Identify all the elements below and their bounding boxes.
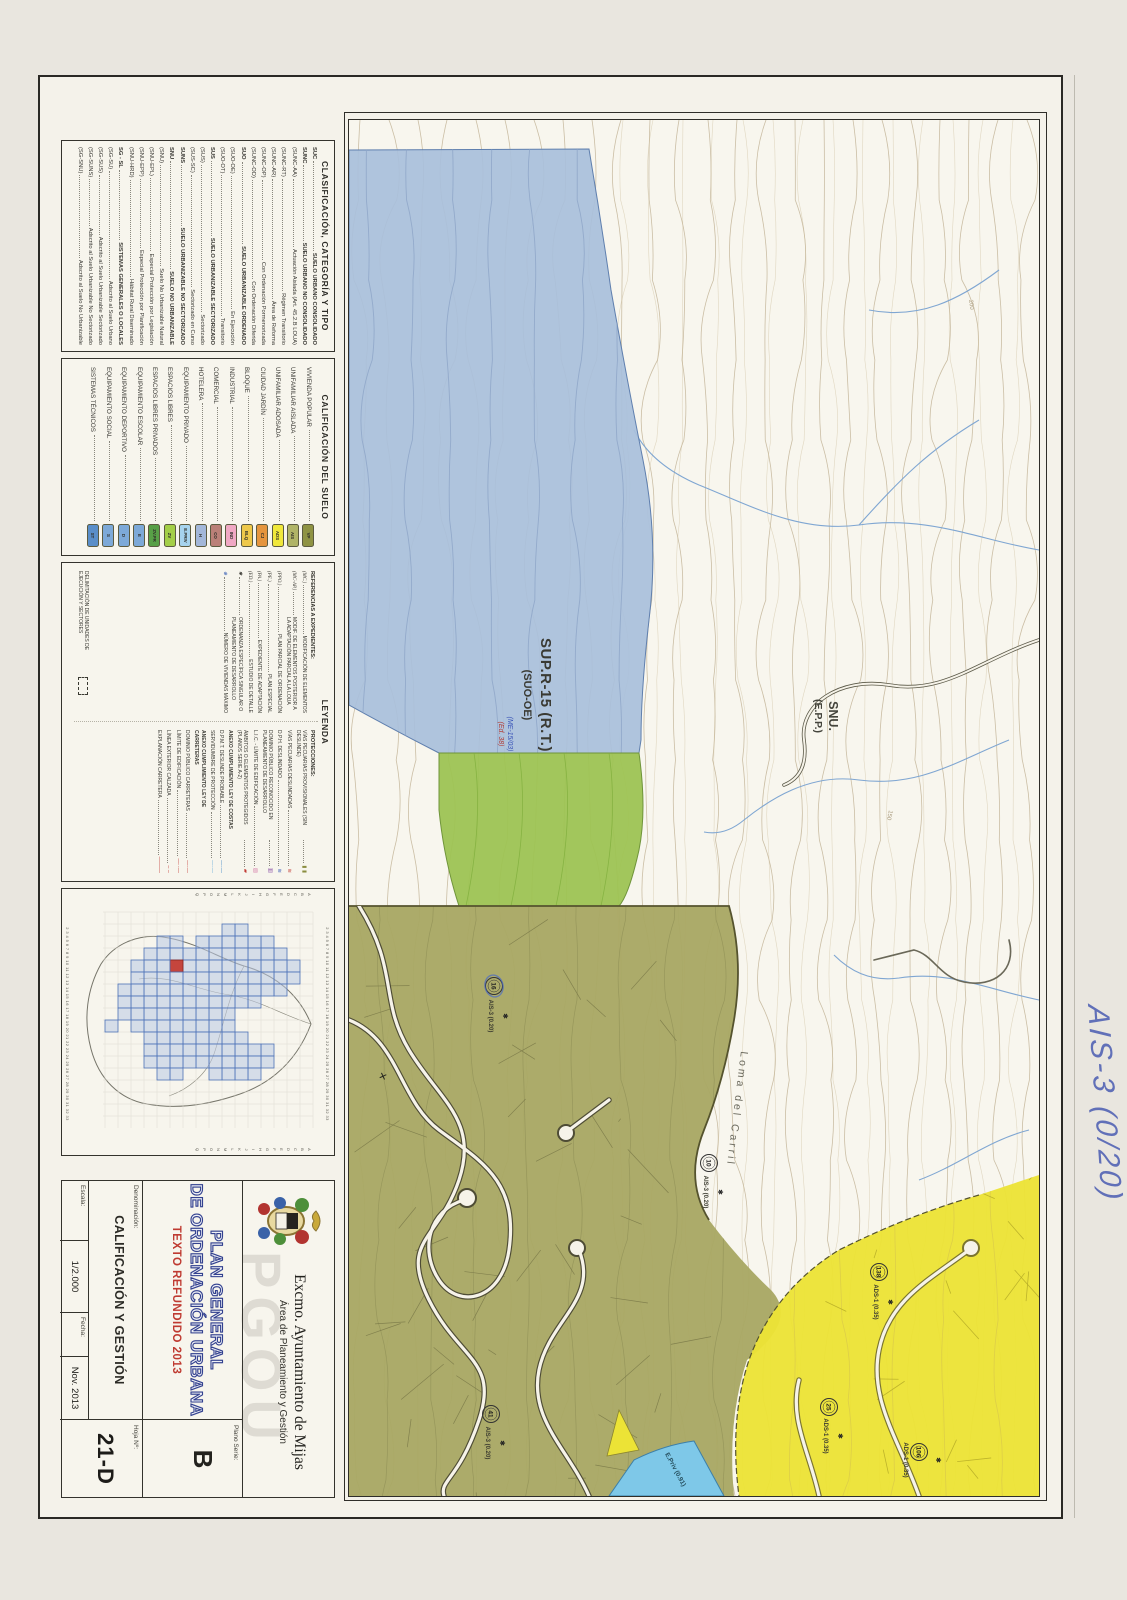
epp-zone-label: (E.P.P.) — [812, 699, 824, 733]
color-chip: VP — [302, 524, 314, 547]
calificacion-row: BLOQUE BLQ — [239, 367, 254, 547]
clasificacion-row: SUNC SUELO URBANO NO CONSOLIDADO — [297, 147, 307, 345]
asterisk-marker-icon: ✱ — [836, 1433, 844, 1439]
asterisk-marker-icon: ✱ — [934, 1457, 942, 1463]
titleblock-denominacion-row: Denominación: CALIFICACIÓN Y GESTIÓN Hoj… — [88, 1181, 142, 1497]
calificacion-row: ESPACIOS LIBRES ZV — [162, 367, 177, 547]
clasificacion-row: SUC SUELO URBANO CONSOLIDADO — [307, 147, 317, 345]
clasificacion-row: (SG-SUS) Adscrito al Suelo Urbanizable S… — [93, 147, 103, 345]
zone-ads1-yellow — [736, 1175, 1039, 1496]
index-numbers-bottom: 2 3 4 5 6 7 8 9 10 11 12 13 14 15 16 17 … — [65, 903, 70, 1145]
calificacion-title: CALIFICACIÓN DEL SUELO — [320, 359, 334, 555]
clasificacion-row: (SUNC-OD) Con Ordenación Diferida — [246, 147, 256, 345]
svg-text:10: 10 — [705, 1159, 712, 1167]
referencia-row: (MC.) MODIFICACIÓN DE ELEMENTOS — [300, 571, 307, 713]
protecciones-rows: VÍAS PECUARIAS PROVISIONALES (SIN DESLIN… — [153, 730, 307, 873]
proteccion-row: DOMINIO PÚBLICO CARRETERAS —·— — [184, 730, 191, 873]
legend-symbol-icon: ≋ — [285, 868, 292, 873]
current-sheet-cell — [170, 960, 183, 972]
color-chip: S — [102, 524, 114, 547]
index-numbers-top: 2 3 4 5 6 7 8 9 10 11 12 13 14 15 16 17 … — [325, 903, 330, 1145]
titleblock-header-row: Excmo. Ayuntamiento de Mijas Área de Pla… — [242, 1181, 334, 1497]
svg-text:ADS-1 (0.35): ADS-1 (0.35) — [872, 1284, 878, 1319]
clasificacion-row: SG - SL SISTEMAS GENERALES O LOCALES — [113, 147, 123, 345]
svg-text:AIS-3 (0.20): AIS-3 (0.20) — [487, 1000, 493, 1033]
proteccion-row: VÍAS PECUARIAS PROVISIONALES (SIN DESLIN… — [295, 730, 308, 873]
svg-text:106: 106 — [915, 1447, 922, 1458]
proteccion-row: SERVIDUMBRE DE PROTECCIÓN —·— — [208, 730, 215, 873]
color-chip: BLQ — [241, 524, 253, 547]
clasificacion-row: SUNS SUELO URBANIZABLE NO SECTORIZADO — [174, 147, 184, 345]
margin-line — [1074, 75, 1075, 1518]
plan-title-line1: PLAN GENERAL — [206, 1181, 226, 1419]
contour-elevation-150: 150 — [885, 810, 893, 822]
leyenda-title: LEYENDA — [320, 563, 334, 881]
clasificacion-row: SUS SUELO URBANIZABLE SECTORIZADO — [205, 147, 215, 345]
proteccion-row: LÍNEA EXTERIOR CALZADA – – — [165, 730, 172, 873]
clasificacion-row: (SNU-EPL) Especial Protección por Legisl… — [144, 147, 154, 345]
contour-elevation-200: 200 — [967, 299, 974, 310]
scanned-plan-sheet: { "clasificacion": { "title": "CLASIFICA… — [0, 0, 1127, 1600]
expediente-ref-1: (ME-15/03) — [506, 716, 513, 751]
clasificacion-row: (SNU) Suelo No Urbanizable Natural — [154, 147, 164, 345]
clasificacion-row: (SNU-HRD) Hábitat Rural Diseminado — [123, 147, 133, 345]
legend-symbol-icon: ▨ — [251, 868, 258, 873]
zone-sup-blue — [349, 149, 653, 753]
asterisk-marker-icon: ✱ — [886, 1299, 894, 1305]
color-chip: CO — [210, 524, 222, 547]
referencia-row: (PA.) EXPEDIENTE DE ADAPTACIÓN — [255, 571, 262, 713]
municipality-index-map — [77, 904, 319, 1140]
referencia-row: (ED.) ESTUDIO DE DETALLE — [245, 571, 252, 713]
dashed-boundary-icon — [78, 677, 88, 695]
proteccion-row: L.I.C. - LÍMITE DE EDIFICACIÓN ▨ — [251, 730, 258, 873]
asterisk-marker-icon: ✱ — [498, 1440, 506, 1446]
proteccion-row: D.P.M.T. DESLINDE PROBABLE —·— — [218, 730, 225, 873]
map-canvas: SUP.R-15 (R.T.) (SUO-OE) (ME-15/03) (Ed.… — [348, 119, 1040, 1497]
titleblock-escala-row: Escala: 1/2.000 Fecha: Nov. 2013 — [60, 1181, 88, 1497]
referencia-row: (PPO.) PLAN PARCIAL DE ORDENACIÓN — [275, 571, 282, 713]
color-chip: E — [133, 524, 145, 547]
suo-zone-label: (SUO-OE) — [521, 670, 533, 721]
color-chip: ST — [87, 524, 99, 547]
map-frame: SUP.R-15 (R.T.) (SUO-OE) (ME-15/03) (Ed.… — [344, 112, 1047, 1501]
clasificacion-rows: SUC SUELO URBANO CONSOLIDADO SUNC SUELO … — [71, 141, 321, 351]
title-block: PGOU Excmo. Ayuntamiento de Mijas Área d… — [61, 1180, 335, 1498]
plano-serie-label: Plano Serie: — [232, 1421, 242, 1497]
svg-text:ADS-1 (0.35): ADS-1 (0.35) — [902, 1442, 908, 1477]
calificacion-row: HOTELERA H — [193, 367, 208, 547]
color-chip: D — [118, 524, 130, 547]
svg-text:41: 41 — [487, 1410, 494, 1418]
referencia-row: (MC-AP.) MODIF. DE ELEMENTOS POSTERIOR A… — [285, 571, 298, 713]
panel-leyenda: LEYENDA REFERENCIAS A EXPEDIENTES: (MC.)… — [61, 562, 335, 882]
proteccion-row: ÁMBITOS O ELEMENTOS PROTEGIDOS (PLANOS S… — [236, 730, 249, 873]
referencia-row: ⊕ NÚMERO DE VIVIENDAS MÁXIMO — [220, 571, 227, 713]
plan-title-line2: DE ORDENACIÓN URBANA — [186, 1181, 206, 1419]
calificacion-row: EQUIPAMIENTO DEPORTIVO D — [116, 367, 131, 547]
panel-sheet-index-map: 2 3 4 5 6 7 8 9 10 11 12 13 14 15 16 17 … — [61, 888, 335, 1156]
clasificacion-row: (SG-SNU) Adscrito al Suelo No Urbanizabl… — [73, 147, 83, 345]
leyenda-protecciones-column: PROTECCIONES: VÍAS PECUARIAS PROVISIONAL… — [74, 721, 318, 873]
expediente-ref-2: (Ed. 38) — [497, 722, 504, 747]
calificacion-row: UNIFAMILIAR ADOSADA ADS — [270, 367, 285, 547]
color-chip: H — [195, 524, 207, 547]
leyenda-referencias-column: REFERENCIAS A EXPEDIENTES: (MC.) MODIFIC… — [74, 571, 318, 721]
proteccion-row: D.P.H. DESLINDADO ≋ — [276, 730, 283, 873]
proteccion-row: EXPLANACIÓN CARRETERA ——— — [155, 730, 162, 873]
titleblock-title-row: PLAN GENERAL DE ORDENACIÓN URBANA TEXTO … — [142, 1181, 242, 1497]
calificacion-row: INDUSTRIAL IND — [224, 367, 239, 547]
legend-symbol-icon: —·— — [208, 860, 215, 873]
marker-ais3: 10 ✱ AIS-3 (0.20) — [701, 1155, 725, 1209]
legend-symbol-icon: —··— — [174, 858, 181, 873]
calificacion-row: EQUIPAMIENTO SOCIAL S — [101, 367, 116, 547]
legend-symbol-icon: —·— — [218, 860, 225, 873]
svg-text:25: 25 — [825, 1403, 832, 1411]
legend-symbol-icon: ≋ — [276, 868, 283, 873]
color-chip: IND — [225, 524, 237, 547]
proteccion-row: VÍAS PECUARIAS DESLINDADAS ≋ — [285, 730, 292, 873]
color-chip: ZV — [164, 524, 176, 547]
svg-text:AIS-3 (0.20): AIS-3 (0.20) — [484, 1427, 490, 1460]
svg-text:138: 138 — [875, 1267, 882, 1278]
denominacion-value: CALIFICACIÓN Y GESTIÓN — [112, 1181, 126, 1419]
referencias-header: REFERENCIAS A EXPEDIENTES: — [309, 571, 315, 713]
legend-symbol-icon: —·— — [184, 860, 191, 873]
mijas-coat-of-arms-icon — [252, 1191, 324, 1251]
snu-zone-label: SNU. — [826, 701, 840, 731]
svg-text:ADS-1 (0.35): ADS-1 (0.35) — [822, 1418, 828, 1453]
legend-symbol-icon: ▮ ▮ — [300, 865, 307, 873]
calificacion-row: EQUIPAMIENTO ESCOLAR E — [131, 367, 146, 547]
clasificacion-row: (SUNC-OP) Con Ordenación Pormenorizada — [256, 147, 266, 345]
fecha-value: Nov. 2013 — [69, 1357, 80, 1419]
denominacion-label: Denominación: — [132, 1181, 142, 1419]
clasificacion-row: (SUS-SC) Sectorizado en Curso — [185, 147, 195, 345]
calificacion-row: UNIFAMILIAR AISLADA AIS — [285, 367, 300, 547]
panel-calificacion: CALIFICACIÓN DEL SUELO VIVIENDA POPULAR … — [61, 358, 335, 556]
clasificacion-title: CLASIFICACIÓN, CATEGORÍA Y TIPO — [320, 141, 334, 351]
legend-symbol-icon: – – — [165, 865, 172, 873]
hoja-label: Hoja Nº: — [132, 1421, 142, 1497]
handwritten-note: AIS-3 (0/20) — [1080, 1004, 1127, 1203]
svg-text:AIS-3 (0.20): AIS-3 (0.20) — [702, 1176, 708, 1209]
clasificacion-row: (SUS) Sectorizado — [195, 147, 205, 345]
legend-symbol-icon: ——— — [155, 857, 162, 874]
calificacion-row: SISTEMAS TÉCNICOS ST — [85, 367, 100, 547]
calificacion-row: COMERCIAL CO — [208, 367, 223, 547]
proteccion-row: ANEXO CUMPLIMIENTO LEY DE COSTAS — [227, 730, 233, 873]
legend-symbol-icon: ▥ — [266, 868, 273, 873]
plan-sheet-landscape: SUP.R-15 (R.T.) (SUO-OE) (ME-15/03) (Ed.… — [0, 0, 1127, 1600]
color-chip: E.PRIV — [179, 524, 191, 547]
asterisk-marker-icon: ✱ — [501, 1013, 509, 1019]
delimitacion-label: DELIMITACIÓN DE UNIDADES DE EJECUCIÓN Y … — [77, 571, 89, 671]
proteccion-row: DOMINIO PÚBLICO RECONOCIDO EN PLANEAMIEN… — [260, 730, 273, 873]
zone-green — [439, 753, 643, 906]
legend-symbol-icon: ▰ — [242, 869, 249, 873]
color-chip: CJ — [256, 524, 268, 547]
svg-text:16: 16 — [490, 982, 497, 990]
plan-subtitle: TEXTO REFUNDIDO 2013 — [170, 1181, 182, 1419]
proteccion-row: ANEXO CUMPLIMIENTO LEY DE CARRETERAS — [193, 730, 206, 873]
index-letters-right: ABCDEFGHIJKLMNOPQ — [82, 1147, 312, 1152]
clasificacion-row: (SUNC-RT) Régimen Transitorio — [276, 147, 286, 345]
clasificacion-row: (SG-SU) Adscrito al Suelo Urbano — [103, 147, 113, 345]
clasificacion-row: (SUNC-AA) Actuación Aislada (Art. 45.2.B… — [286, 147, 296, 345]
escala-label: Escala: — [79, 1181, 88, 1240]
calificacion-row: CIUDAD JARDÍN CJ — [254, 367, 269, 547]
sup-zone-label: SUP.R-15 (R.T.) — [537, 638, 554, 752]
calificacion-row: ESPACIOS LIBRES PRIVADOS ZV.PR — [147, 367, 162, 547]
clasificacion-row: (SG-SUNS) Adscrito al Suelo Urbanizable … — [83, 147, 93, 345]
proteccion-row: LÍMITE DE EDIFICACIÓN —··— — [174, 730, 181, 873]
referencias-rows: (MC.) MODIFICACIÓN DE ELEMENTOS (MC-AP.)… — [218, 571, 307, 713]
fecha-label: Fecha: — [79, 1313, 88, 1356]
plano-serie-value: B — [187, 1421, 218, 1497]
referencia-row: ✱ ORDENANZA ESPECÍFICA SINGULAR O PLANEA… — [230, 571, 243, 713]
color-chip: AIS — [287, 524, 299, 547]
calificacion-row: EQUIPAMIENTO PRIVADO E.PRIV — [177, 367, 192, 547]
organization-name: Excmo. Ayuntamiento de Mijas — [290, 1251, 308, 1493]
department-name: Área de Planeamiento y Gestión — [277, 1251, 288, 1493]
delimitacion-row: DELIMITACIÓN DE UNIDADES DE EJECUCIÓN Y … — [74, 571, 89, 713]
protecciones-header: PROTECCIONES: — [309, 730, 315, 873]
clasificacion-row: SUO SUELO URBANIZABLE ORDENADO — [236, 147, 246, 345]
calificacion-rows: VIVIENDA POPULAR VP UNIFAMILIAR AISLADA … — [81, 359, 320, 555]
clasificacion-row: (SNU-EPP) Especial Protección por Planif… — [134, 147, 144, 345]
calificacion-row: VIVIENDA POPULAR VP — [301, 367, 316, 547]
referencia-row: (PE.) PLAN ESPECIAL — [265, 571, 272, 713]
escala-value: 1/2.000 — [69, 1241, 80, 1312]
index-grid-cells — [103, 912, 313, 1128]
color-chip: ZV.PR — [148, 524, 160, 547]
clasificacion-row: (SUO-OT) Transitorio — [215, 147, 225, 345]
panel-clasificacion: CLASIFICACIÓN, CATEGORÍA Y TIPO SUC SUEL… — [61, 140, 335, 352]
rural-roads — [784, 640, 1039, 983]
color-chip: ADS — [272, 524, 284, 547]
sheet-number: 21-D — [92, 1421, 118, 1497]
index-letters-left: ABCDEFGHIJKLMNOPQ — [82, 892, 312, 897]
asterisk-marker-icon: ✱ — [716, 1189, 724, 1195]
clasificacion-row: (SUO-OE) En Ejecución — [225, 147, 235, 345]
clasificacion-row: (SUNC-AR) Área de Reforma — [266, 147, 276, 345]
clasificacion-row: SNU SUELO NO URBANIZABLE — [164, 147, 174, 345]
